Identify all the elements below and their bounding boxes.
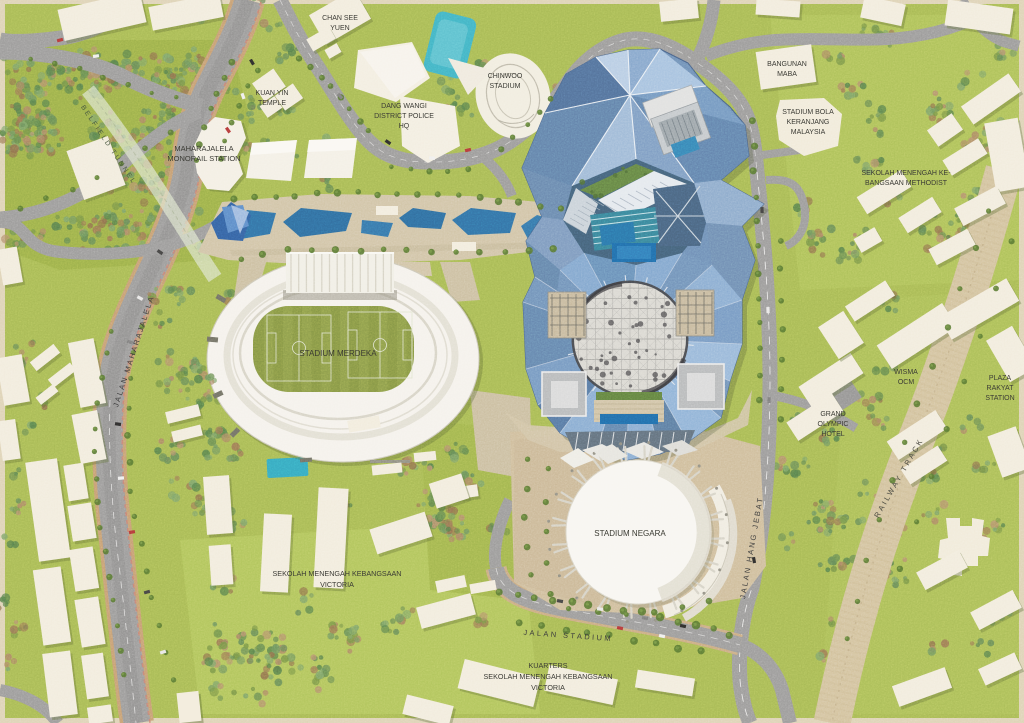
svg-text:SEKOLAH MENENGAH KEBANGSAAN: SEKOLAH MENENGAH KEBANGSAAN	[272, 569, 401, 578]
svg-text:STADIUM: STADIUM	[490, 83, 521, 90]
svg-text:DISTRICT POLICE: DISTRICT POLICE	[374, 113, 434, 120]
svg-text:HQ: HQ	[399, 123, 410, 130]
svg-text:OCM: OCM	[898, 379, 915, 386]
svg-text:MABA: MABA	[777, 71, 797, 78]
svg-text:VICTORIA: VICTORIA	[531, 683, 565, 692]
svg-text:GRAND: GRAND	[820, 411, 845, 418]
svg-text:SEKOLAH MENENGAH KE-: SEKOLAH MENENGAH KE-	[861, 170, 951, 177]
svg-text:STADIUM NEGARA: STADIUM NEGARA	[594, 529, 666, 538]
svg-text:MALAYSIA: MALAYSIA	[791, 129, 826, 136]
svg-text:HOTEL: HOTEL	[821, 431, 844, 438]
svg-text:TEMPLE: TEMPLE	[258, 100, 286, 107]
svg-text:BANGUNAN: BANGUNAN	[767, 61, 807, 68]
svg-text:SEKOLAH MENENGAH KEBANGSAAN: SEKOLAH MENENGAH KEBANGSAAN	[483, 672, 612, 681]
svg-text:CHINWOO: CHINWOO	[488, 73, 523, 80]
svg-text:RAKYAT: RAKYAT	[987, 385, 1015, 392]
svg-text:STADIUM MERDEKA: STADIUM MERDEKA	[299, 349, 377, 358]
svg-text:OLYMPIC: OLYMPIC	[818, 421, 849, 428]
svg-text:PLAZA: PLAZA	[989, 375, 1012, 382]
svg-text:BANGSAAN METHODIST: BANGSAAN METHODIST	[865, 180, 948, 187]
svg-text:VICTORIA: VICTORIA	[320, 580, 354, 589]
svg-text:KUARTERS: KUARTERS	[528, 661, 567, 670]
svg-text:KERANJANG: KERANJANG	[787, 119, 830, 126]
svg-text:DANG WANGI: DANG WANGI	[381, 103, 427, 110]
svg-text:WISMA: WISMA	[894, 369, 918, 376]
svg-text:KUAN YIN: KUAN YIN	[256, 90, 289, 97]
svg-text:STADIUM BOLA: STADIUM BOLA	[782, 109, 834, 116]
svg-text:STATION: STATION	[985, 395, 1014, 402]
svg-text:CHAN SEE: CHAN SEE	[322, 15, 358, 22]
svg-text:MONORAIL STATION: MONORAIL STATION	[167, 154, 240, 163]
svg-text:YUEN: YUEN	[330, 25, 349, 32]
svg-text:MAHARAJALELA: MAHARAJALELA	[174, 144, 233, 153]
